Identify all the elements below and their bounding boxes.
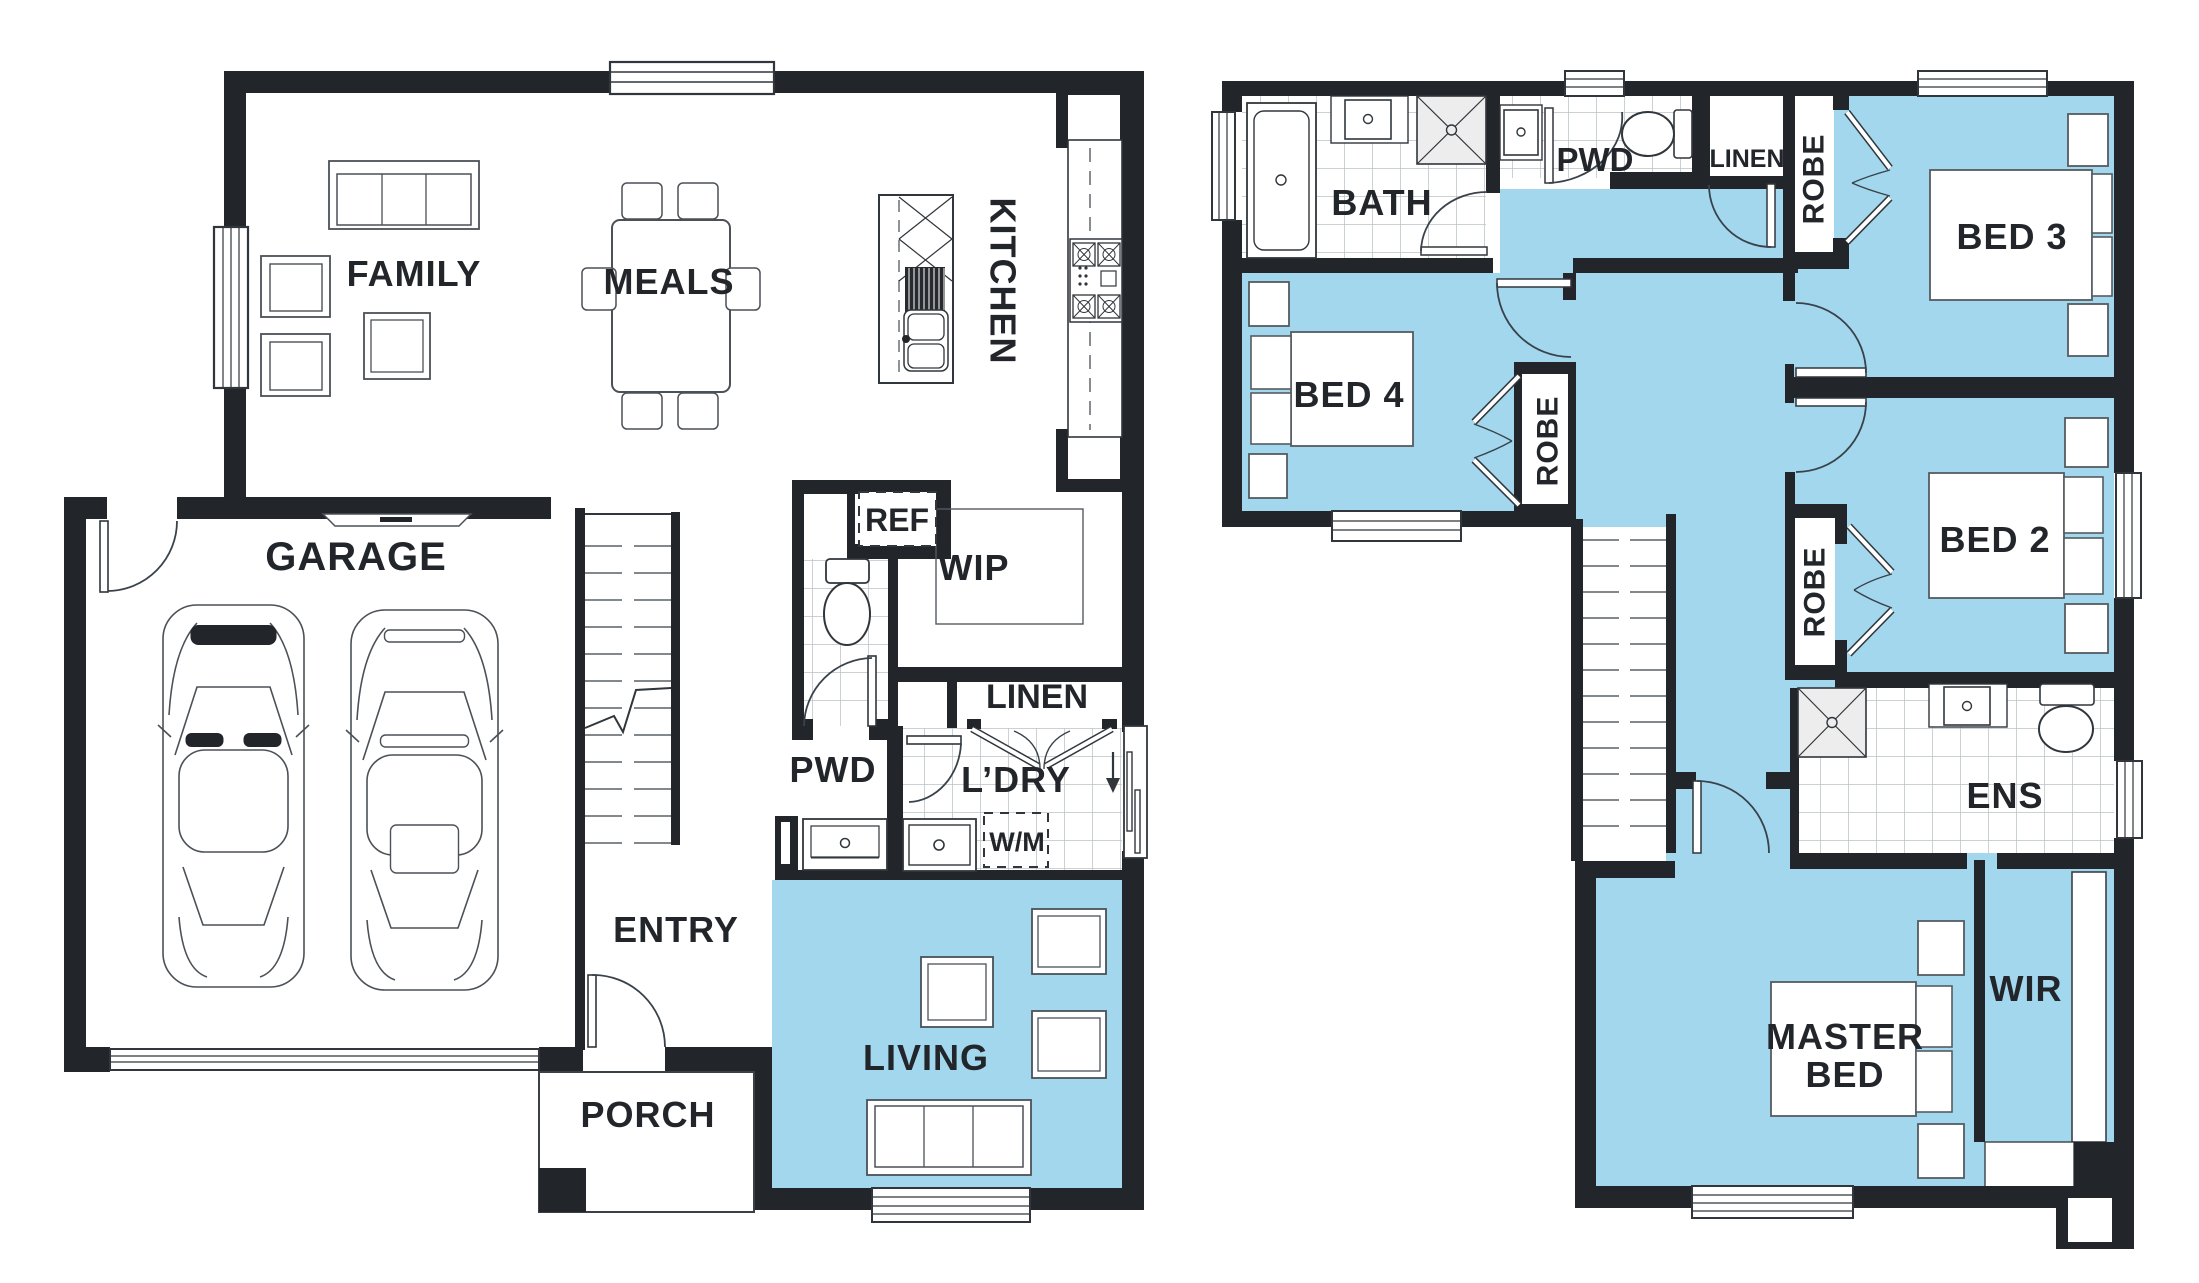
svg-text:ROBE: ROBE [1532,396,1565,487]
svg-text:L’DRY: L’DRY [961,759,1071,800]
svg-text:LINEN: LINEN [1710,145,1785,173]
svg-text:W/M: W/M [989,827,1044,857]
svg-text:BED 3: BED 3 [1956,216,2067,257]
svg-text:FAMILY: FAMILY [347,253,482,294]
svg-text:ENS: ENS [1966,775,2043,816]
svg-text:GARAGE: GARAGE [265,535,447,579]
svg-text:BATH: BATH [1331,182,1432,223]
svg-text:LIVING: LIVING [863,1037,989,1078]
svg-text:MASTER: MASTER [1766,1016,1924,1057]
svg-text:BED: BED [1805,1054,1884,1095]
svg-text:PORCH: PORCH [580,1094,715,1135]
svg-text:WIP: WIP [939,547,1010,588]
svg-text:PWD: PWD [1557,141,1634,178]
svg-text:WIR: WIR [1990,968,2063,1009]
svg-text:BED 4: BED 4 [1293,374,1404,415]
svg-text:LINEN: LINEN [986,678,1088,716]
svg-text:KITCHEN: KITCHEN [983,198,1024,365]
svg-text:PWD: PWD [790,749,877,790]
svg-text:REF: REF [865,502,929,538]
svg-text:BED 2: BED 2 [1939,519,2050,560]
svg-text:ROBE: ROBE [1798,134,1831,225]
svg-text:MEALS: MEALS [604,261,735,302]
svg-text:ROBE: ROBE [1799,547,1832,638]
svg-text:ENTRY: ENTRY [613,909,739,950]
